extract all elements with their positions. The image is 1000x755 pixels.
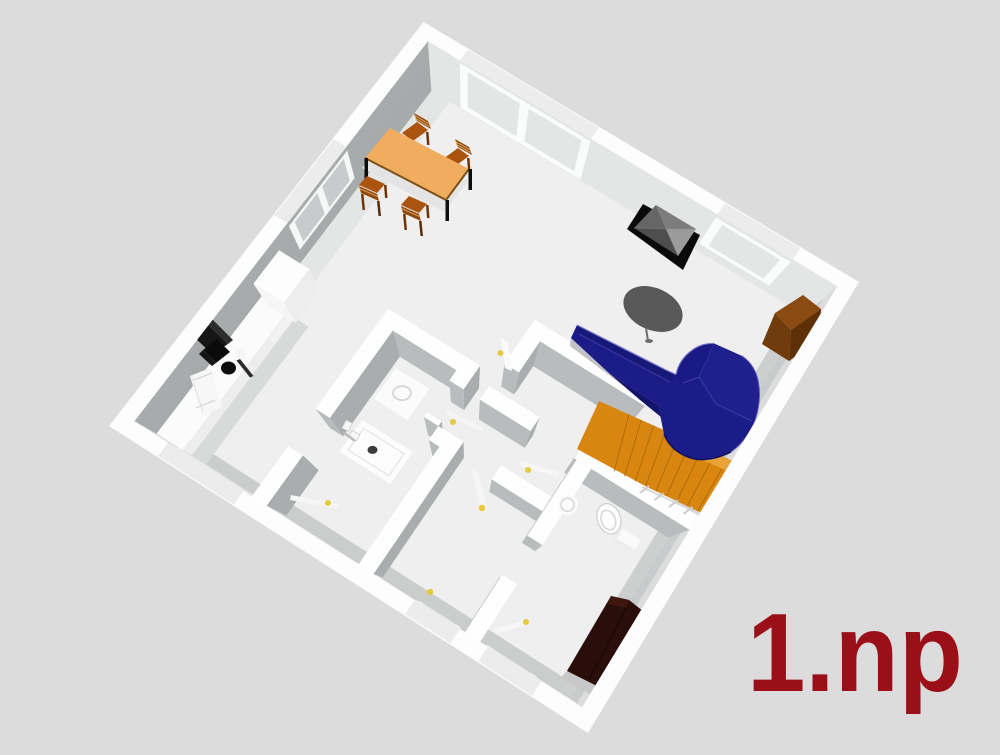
svg-text:1.np: 1.np <box>747 591 963 715</box>
